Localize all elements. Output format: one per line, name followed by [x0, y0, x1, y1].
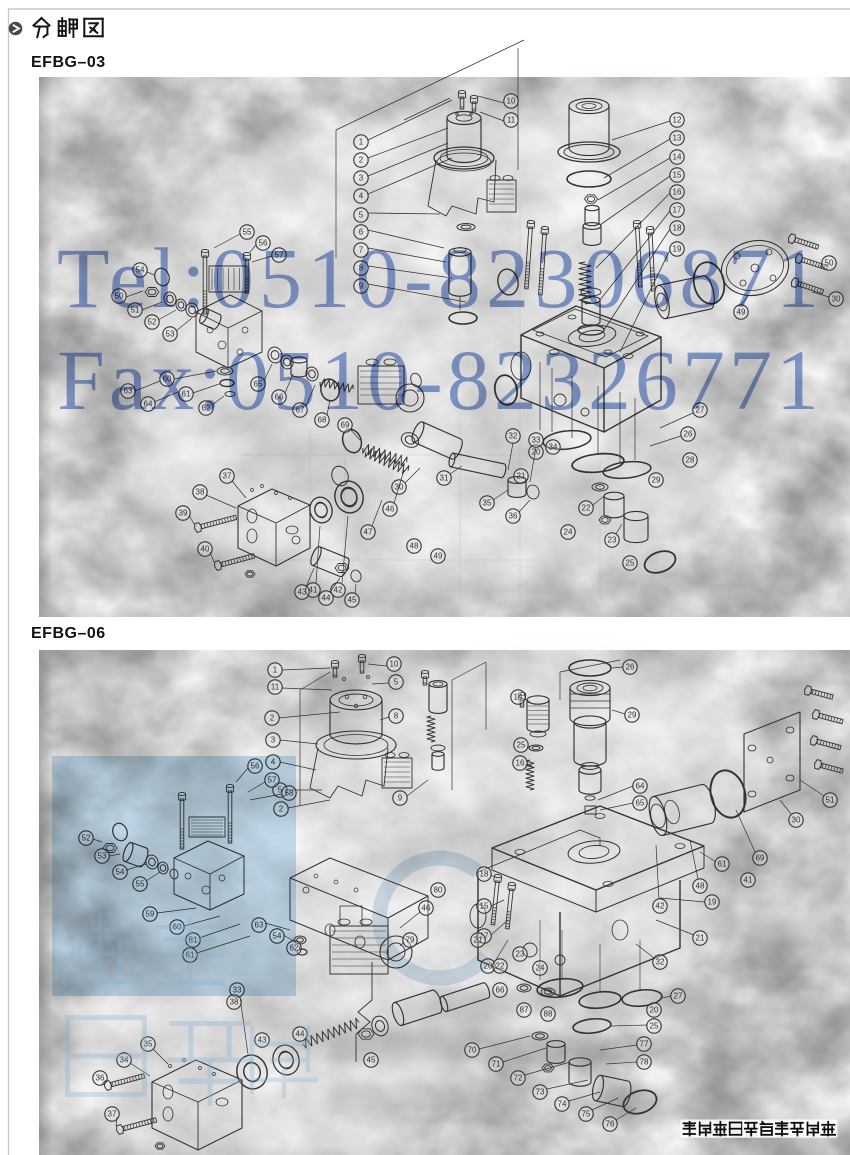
svg-text:29: 29: [628, 711, 637, 720]
svg-text:16: 16: [516, 759, 525, 768]
svg-text:37: 37: [223, 472, 232, 481]
svg-text:2: 2: [359, 156, 364, 165]
svg-text:41: 41: [309, 586, 318, 595]
svg-text:25: 25: [517, 741, 526, 750]
svg-text:2: 2: [270, 714, 275, 723]
svg-text:15: 15: [480, 902, 489, 911]
svg-text:79: 79: [406, 936, 415, 945]
svg-text:24: 24: [536, 964, 545, 973]
svg-text:21: 21: [696, 934, 705, 943]
svg-text:38: 38: [196, 488, 205, 497]
svg-text:51: 51: [826, 796, 835, 805]
svg-text:47: 47: [364, 528, 373, 537]
svg-text:Tel:0510-82306871: Tel:0510-82306871: [57, 230, 819, 326]
svg-text:43: 43: [298, 588, 307, 597]
svg-text:40: 40: [201, 545, 210, 554]
svg-text:23: 23: [608, 536, 617, 545]
svg-text:88: 88: [544, 1010, 553, 1019]
svg-text:70: 70: [468, 1046, 477, 1055]
svg-text:75: 75: [582, 1110, 591, 1119]
svg-text:39: 39: [179, 509, 188, 518]
svg-text:11: 11: [507, 116, 516, 125]
svg-text:30: 30: [792, 816, 801, 825]
svg-text:37: 37: [108, 1110, 117, 1119]
svg-text:64: 64: [636, 782, 645, 791]
svg-text:19: 19: [708, 898, 717, 907]
svg-text:73: 73: [536, 1088, 545, 1097]
svg-text:45: 45: [348, 596, 357, 605]
svg-text:72: 72: [514, 1074, 523, 1083]
svg-text:33: 33: [532, 436, 541, 445]
svg-text:41: 41: [744, 876, 753, 885]
svg-text:32: 32: [509, 432, 518, 441]
svg-text:36: 36: [96, 1074, 105, 1083]
svg-text:13: 13: [673, 134, 682, 143]
svg-text:32: 32: [656, 958, 665, 967]
svg-text:30: 30: [832, 295, 841, 304]
svg-text:1: 1: [359, 138, 364, 147]
svg-text:12: 12: [673, 116, 682, 125]
svg-text:29: 29: [652, 476, 661, 485]
svg-text:3: 3: [359, 174, 364, 183]
svg-text:66: 66: [496, 986, 505, 995]
svg-text:Fax:0510-82326771: Fax:0510-82326771: [57, 332, 819, 428]
svg-text:42: 42: [656, 902, 665, 911]
svg-text:38: 38: [230, 998, 239, 1007]
svg-text:44: 44: [296, 1030, 305, 1039]
svg-text:25: 25: [650, 1022, 659, 1031]
svg-text:21: 21: [474, 936, 483, 945]
svg-text:5: 5: [359, 211, 364, 220]
svg-text:15: 15: [673, 171, 682, 180]
svg-text:26: 26: [684, 430, 693, 439]
svg-text:14: 14: [673, 153, 682, 162]
svg-text:4: 4: [359, 192, 364, 201]
svg-text:31: 31: [440, 474, 449, 483]
svg-text:18: 18: [480, 870, 489, 879]
svg-text:36: 36: [509, 512, 518, 521]
svg-text:26: 26: [626, 663, 635, 672]
svg-text:9: 9: [398, 794, 403, 803]
svg-text:10: 10: [390, 660, 399, 669]
svg-text:20: 20: [532, 448, 541, 457]
svg-text:49: 49: [434, 552, 443, 561]
svg-text:8: 8: [394, 712, 399, 721]
svg-text:87: 87: [520, 1006, 529, 1015]
svg-text:69: 69: [756, 854, 765, 863]
svg-text:5: 5: [394, 678, 399, 687]
svg-text:24: 24: [564, 528, 573, 537]
svg-text:17: 17: [673, 206, 682, 215]
svg-text:30: 30: [395, 483, 404, 492]
svg-text:28: 28: [686, 456, 695, 465]
svg-text:48: 48: [696, 882, 705, 891]
svg-text:80: 80: [434, 886, 443, 895]
svg-text:11: 11: [271, 683, 280, 692]
svg-text:50: 50: [825, 259, 834, 268]
svg-text:77: 77: [640, 1040, 649, 1049]
svg-text:46: 46: [386, 505, 395, 514]
svg-text:16: 16: [673, 188, 682, 197]
svg-text:22: 22: [582, 504, 591, 513]
svg-text:65: 65: [636, 799, 645, 808]
svg-text:14: 14: [514, 693, 523, 702]
svg-text:45: 45: [367, 1056, 376, 1065]
svg-text:48: 48: [410, 542, 419, 551]
svg-text:23: 23: [516, 950, 525, 959]
svg-text:42: 42: [334, 586, 343, 595]
svg-text:78: 78: [640, 1058, 649, 1067]
svg-text:34: 34: [549, 443, 558, 452]
svg-text:76: 76: [606, 1120, 615, 1129]
svg-text:44: 44: [322, 594, 331, 603]
svg-text:22: 22: [496, 962, 505, 971]
svg-text:25: 25: [626, 559, 635, 568]
svg-text:61: 61: [718, 860, 727, 869]
svg-text:20: 20: [650, 1006, 659, 1015]
svg-text:71: 71: [492, 1060, 501, 1069]
svg-text:3: 3: [271, 736, 276, 745]
svg-text:74: 74: [558, 1100, 567, 1109]
svg-text:27: 27: [674, 992, 683, 1001]
svg-text:46: 46: [422, 904, 431, 913]
svg-text:35: 35: [483, 499, 492, 508]
svg-text:10: 10: [507, 97, 516, 106]
svg-text:1: 1: [273, 666, 278, 675]
